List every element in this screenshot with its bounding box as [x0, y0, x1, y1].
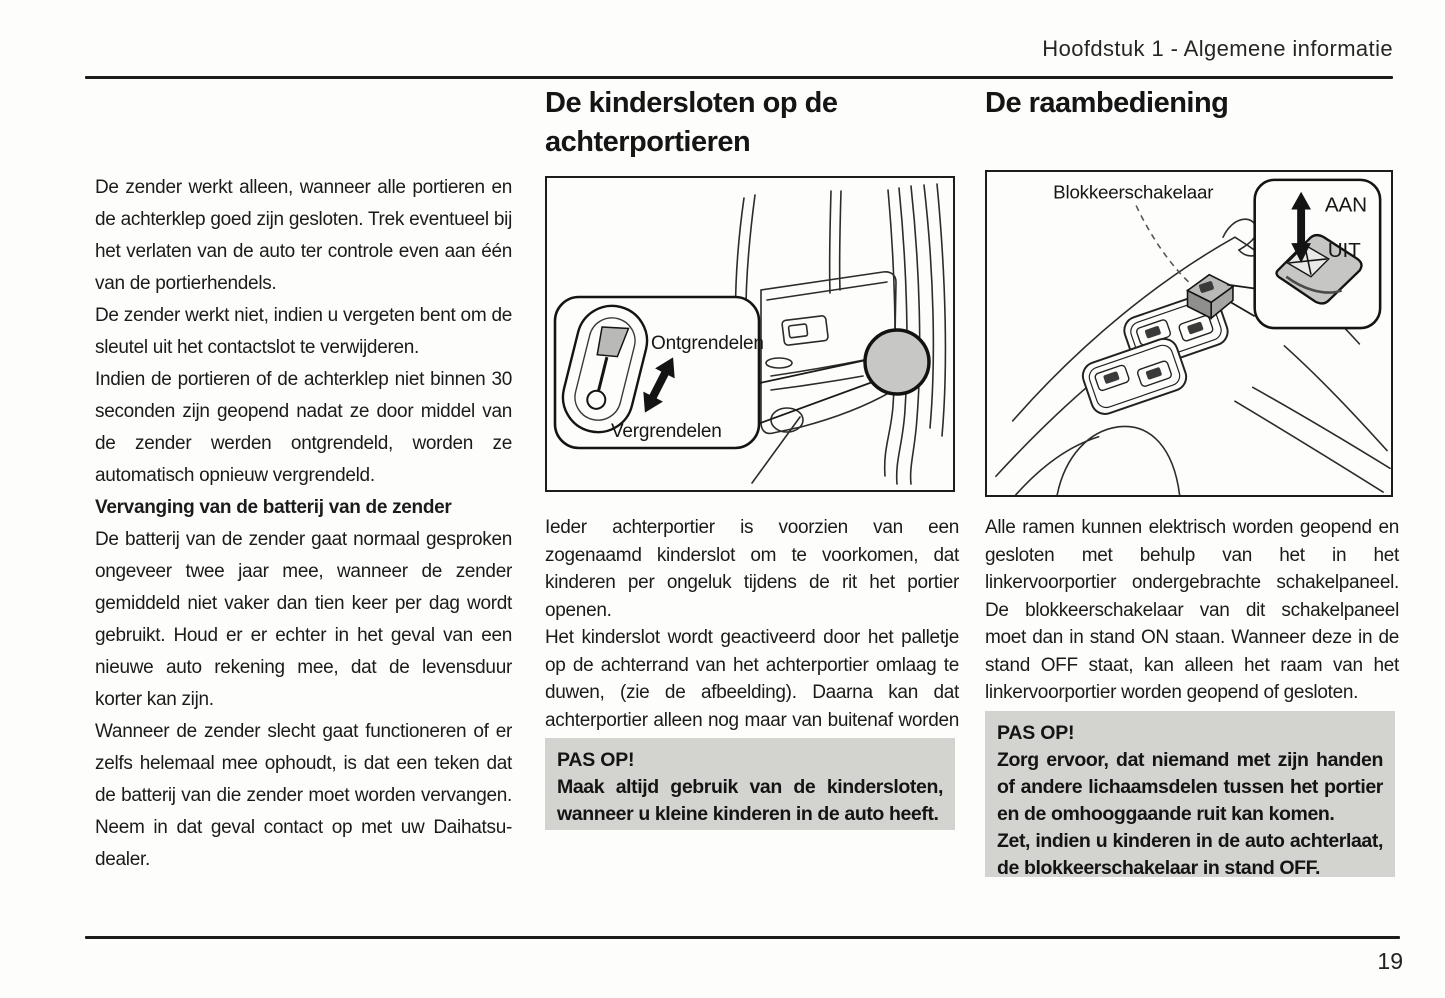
figure-label-off: UIT [1328, 239, 1361, 262]
window-switch-figure: Blokkeerschakelaar AAN UIT [985, 170, 1393, 497]
warning-body: Maak altijd gebruik van de kindersloten,… [557, 774, 943, 828]
left-column: De zender werkt alleen, wanneer alle por… [95, 172, 512, 876]
paragraph: De zender werkt niet, indien u vergeten … [95, 300, 512, 364]
figure-label-blocker-switch: Blokkeerschakelaar [1053, 182, 1213, 203]
paragraph: Ieder achterportier is voorzien van een … [545, 514, 959, 624]
page-number: 19 [1377, 948, 1403, 975]
section-heading-windows: De raambediening [985, 84, 1393, 123]
figure-label-lock: Vergrendelen [611, 421, 722, 442]
figure-label-on: AAN [1325, 194, 1367, 217]
header-rule [85, 76, 1393, 79]
section-subheading: Vervanging van de batterij van de zender [95, 492, 512, 524]
footer-rule [85, 936, 1400, 939]
section-heading-child-locks: De kindersloten op de achterportieren [545, 84, 945, 162]
lock-position-highlight [865, 330, 929, 394]
chapter-header: Hoofdstuk 1 - Algemene informatie [1042, 36, 1393, 62]
window-switch-illustration: Blokkeerschakelaar AAN UIT [987, 172, 1391, 495]
paragraph: Wanneer de zender slecht gaat functioner… [95, 716, 512, 876]
paragraph: De batterij van de zender gaat normaal g… [95, 524, 512, 716]
warning-body: Zet, indien u kinderen in de auto achter… [997, 828, 1383, 882]
warning-title: PAS OP! [997, 720, 1383, 747]
paragraph: Indien de portieren of de achterklep nie… [95, 364, 512, 492]
child-lock-figure: Ontgrendelen Vergrendelen [545, 176, 955, 492]
warning-body: Zorg ervoor, dat niemand met zijn handen… [997, 747, 1383, 828]
warning-box-windows: PAS OP! Zorg ervoor, dat niemand met zij… [985, 711, 1395, 877]
manual-page: Hoofdstuk 1 - Algemene informatie De zen… [0, 0, 1445, 998]
figure-label-unlock: Ontgrendelen [651, 333, 764, 354]
child-lock-illustration: Ontgrendelen Vergrendelen [547, 178, 953, 490]
warning-title: PAS OP! [557, 747, 943, 774]
middle-column-text: Ieder achterportier is voorzien van een … [545, 514, 959, 762]
warning-box-child-locks: PAS OP! Maak altijd gebruik van de kinde… [545, 738, 955, 830]
paragraph: De zender werkt alleen, wanneer alle por… [95, 172, 512, 300]
right-column-text: Alle ramen kunnen elektrisch worden geop… [985, 514, 1399, 707]
paragraph: Alle ramen kunnen elektrisch worden geop… [985, 514, 1399, 707]
window-switch-pod-rear [1079, 335, 1190, 418]
